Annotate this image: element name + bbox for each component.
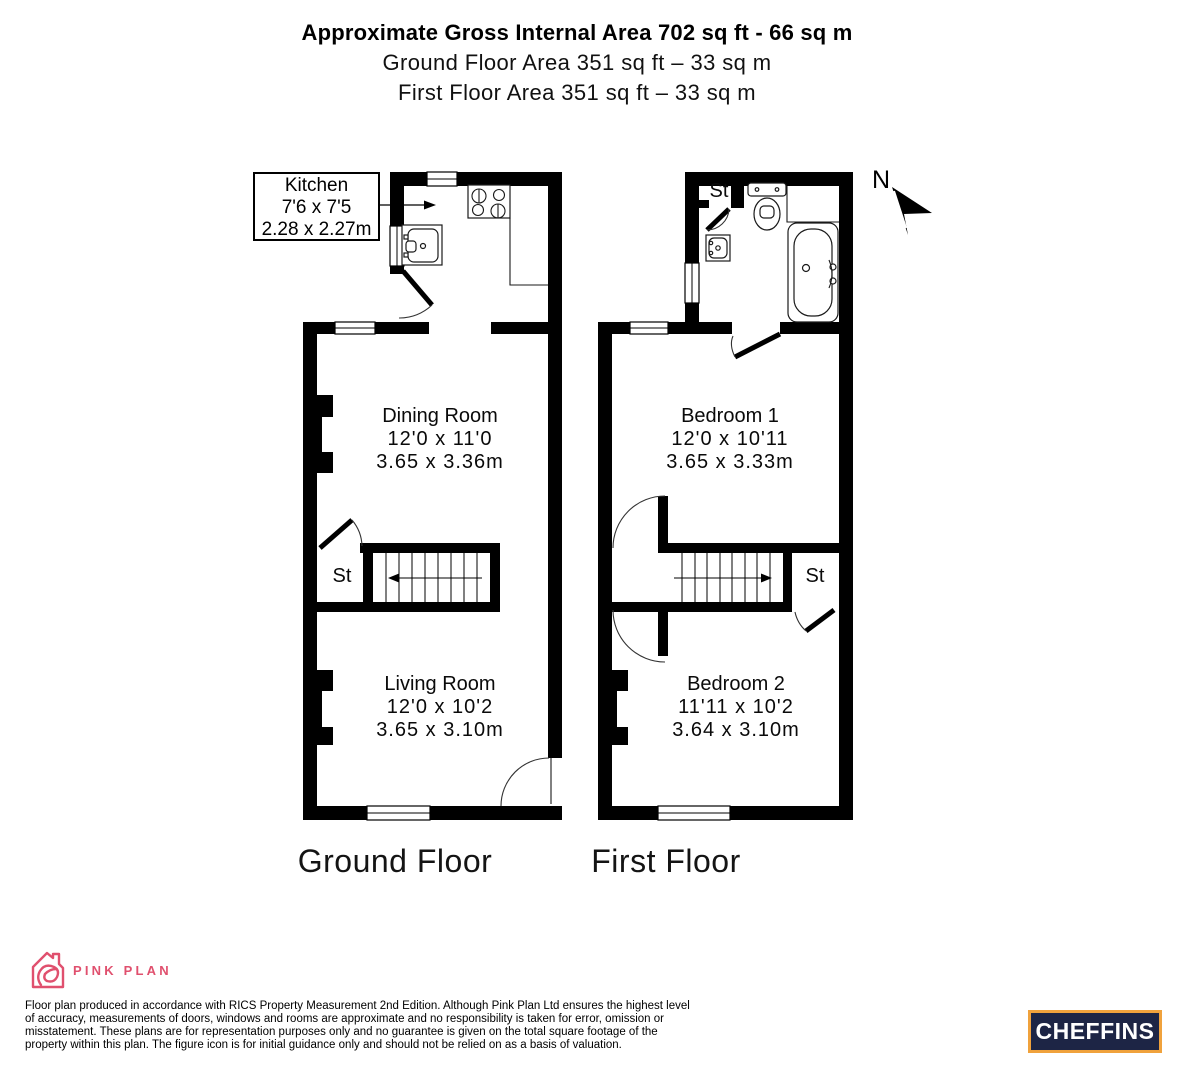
pink-plan-house-icon <box>33 953 63 987</box>
dining-room-name: Dining Room <box>376 405 504 428</box>
basin-icon <box>706 235 730 261</box>
kitchen-dims-imperial: 7'6 x 7'5 <box>255 197 378 219</box>
kitchen-sink-icon <box>402 225 442 265</box>
ground-floor-stairs <box>386 553 482 602</box>
kitchen-callout-box: Kitchen 7'6 x 7'5 2.28 x 2.27m <box>253 172 380 241</box>
bathroom-doorway <box>732 321 780 335</box>
kitchen-dining-doorway <box>429 321 491 335</box>
landing-storage-label: St <box>806 565 825 588</box>
cheffins-logo: CHEFFINS <box>1028 1010 1162 1053</box>
bedroom2-label: Bedroom 2 11'11 x 10'2 3.64 x 3.10m <box>672 673 800 742</box>
kitchen-counter <box>510 218 548 285</box>
floorplan-drawing <box>0 0 1191 1080</box>
disclaimer-text: Floor plan produced in accordance with R… <box>25 1000 701 1052</box>
bedroom2-dims-imperial: 11'11 x 10'2 <box>672 696 800 719</box>
front-doorway <box>548 758 562 806</box>
bedroom1-label: Bedroom 1 12'0 x 10'11 3.65 x 3.33m <box>666 405 794 474</box>
kitchen-callout-arrow <box>378 201 436 210</box>
ground-storage-label: St <box>333 565 352 588</box>
dining-fireplace-recess <box>322 417 336 452</box>
dining-room-dims-imperial: 12'0 x 11'0 <box>376 428 504 451</box>
kitchen-dims-metric: 2.28 x 2.27m <box>255 219 378 241</box>
bedroom2-dims-metric: 3.64 x 3.10m <box>672 719 800 742</box>
stairs-down-arrow <box>388 574 399 583</box>
bathtub-icon <box>788 223 838 322</box>
pink-plan-wordmark: PINK PLAN <box>73 963 172 978</box>
kitchen-name: Kitchen <box>255 175 378 197</box>
first-floor-stairs <box>674 553 772 602</box>
dining-room-label: Dining Room 12'0 x 11'0 3.65 x 3.36m <box>376 405 504 474</box>
bedroom1-dims-metric: 3.65 x 3.33m <box>666 451 794 474</box>
first-floor-area-subtitle: First Floor Area 351 sq ft – 33 sq m <box>398 80 756 106</box>
first-floor-name: First Floor <box>591 843 741 880</box>
dining-room-dims-metric: 3.65 x 3.36m <box>376 451 504 474</box>
ground-floor-name: Ground Floor <box>298 843 493 880</box>
bedroom1-name: Bedroom 1 <box>666 405 794 428</box>
compass-north-label: N <box>872 166 890 195</box>
floorplan-page: Approximate Gross Internal Area 702 sq f… <box>0 0 1191 1080</box>
bath-partition <box>787 186 839 222</box>
bathroom-storage-label: St <box>710 180 729 203</box>
ground-floor-area-subtitle: Ground Floor Area 351 sq ft – 33 sq m <box>382 50 771 76</box>
north-arrow-icon <box>892 187 932 235</box>
living-room-label: Living Room 12'0 x 10'2 3.65 x 3.10m <box>376 673 504 742</box>
bedroom2-name: Bedroom 2 <box>672 673 800 696</box>
bedroom1-dims-imperial: 12'0 x 10'11 <box>666 428 794 451</box>
toilet-icon <box>748 183 786 230</box>
stove-icon <box>468 185 510 218</box>
page-title: Approximate Gross Internal Area 702 sq f… <box>301 20 852 46</box>
living-room-name: Living Room <box>376 673 504 696</box>
living-fireplace-recess <box>322 691 336 727</box>
living-room-dims-metric: 3.65 x 3.10m <box>376 719 504 742</box>
living-room-dims-imperial: 12'0 x 10'2 <box>376 696 504 719</box>
bedroom2-fireplace-recess <box>617 691 631 727</box>
